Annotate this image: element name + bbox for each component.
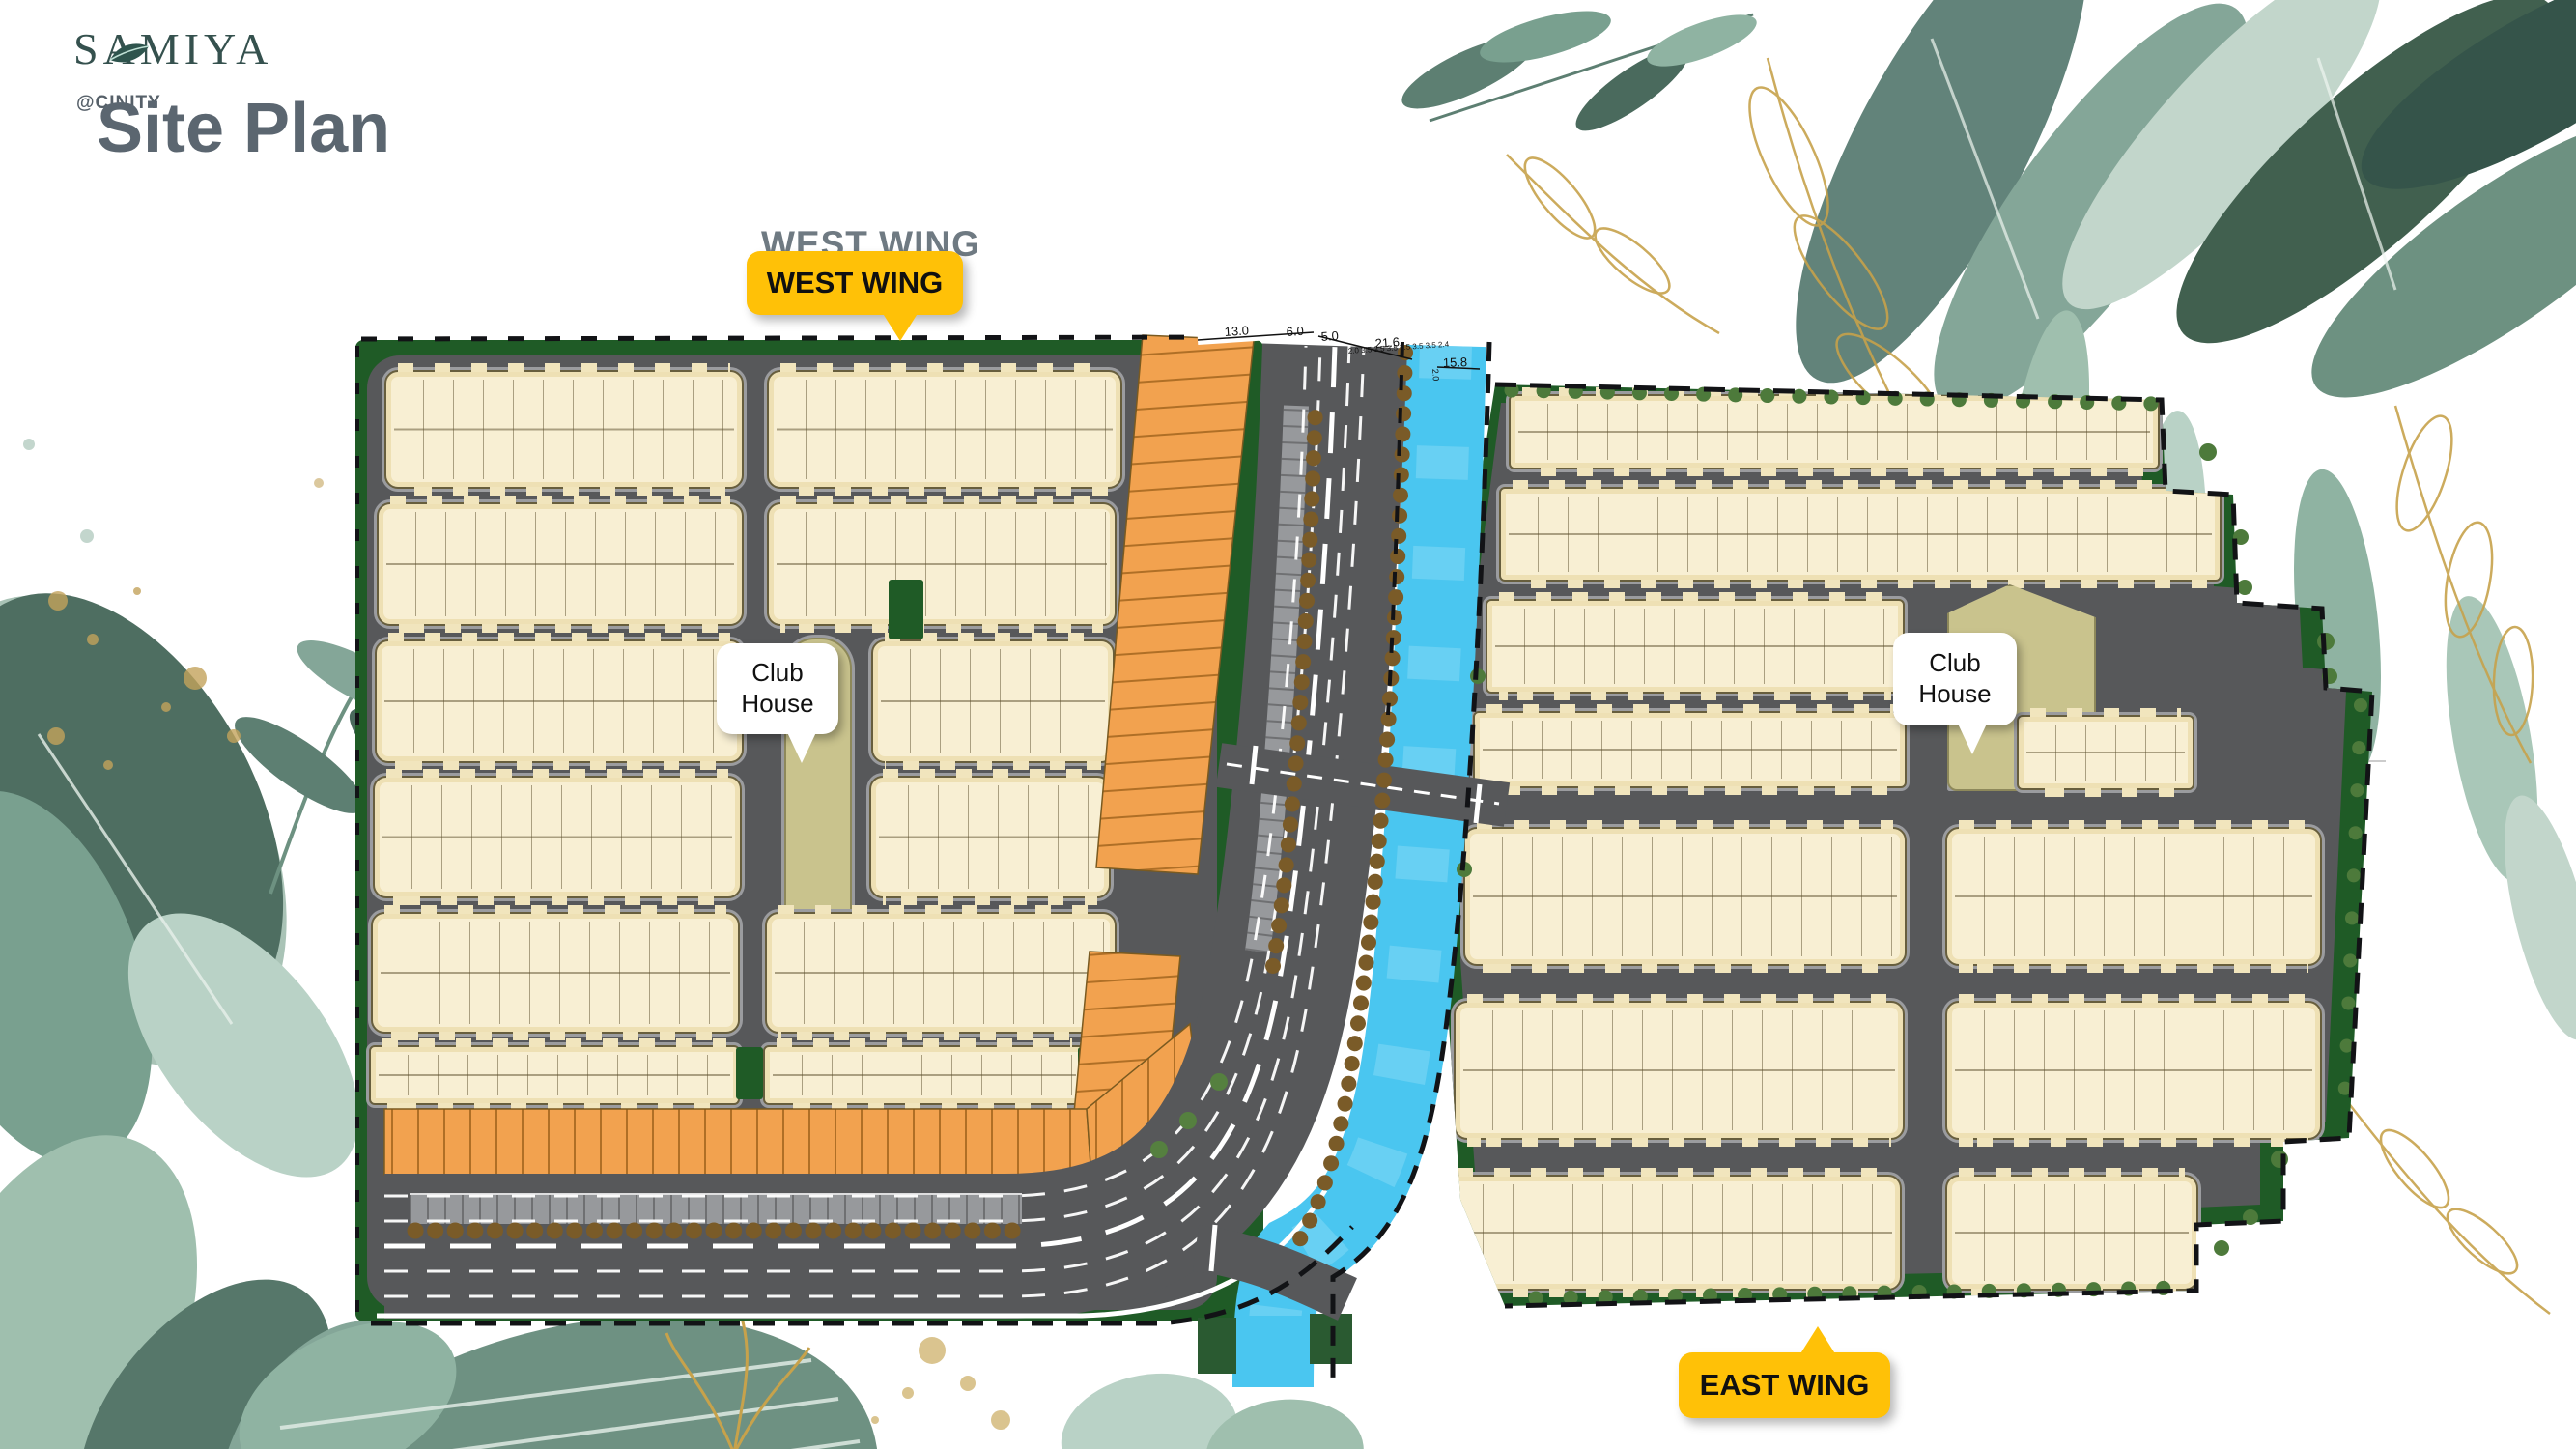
orange-plot-strips: [384, 335, 1254, 1180]
dim-text: 2.0: [1430, 368, 1441, 381]
tag-pointer-icon: [882, 312, 919, 341]
infrastructure-overlay: 13.0 6.0 5.0 2.0 3.5 3.5 3.5 3.5 3.5 3.5…: [0, 0, 2576, 1449]
dim-text: 6.0: [1286, 324, 1304, 339]
dim-text: 13.0: [1224, 323, 1249, 339]
bubble-pointer-icon: [786, 730, 817, 763]
green-patch: [1198, 1318, 1236, 1374]
brand-leaf-icon: [108, 39, 151, 68]
club-house-label-west: Club House: [717, 643, 838, 734]
tag-pointer-icon: [1799, 1326, 1836, 1355]
east-wing-tag-label: EAST WING: [1700, 1368, 1870, 1403]
west-wing-tag-label: WEST WING: [767, 266, 944, 300]
east-wing-tag: EAST WING: [1679, 1352, 1890, 1418]
club-house-label-text: Club House: [1916, 648, 1994, 709]
bubble-pointer-icon: [1957, 722, 1988, 754]
west-wing-tag: WEST WING: [747, 251, 963, 315]
club-house-label-text: Club House: [739, 658, 816, 719]
dim-text: 15.8: [1443, 355, 1468, 370]
dim-text: 5.0: [1320, 328, 1339, 344]
club-house-label-east: Club House: [1893, 633, 2017, 725]
slide: SAMIYA @CINITY Site Plan WEST WING: [0, 0, 2576, 1449]
dim-text: 21.6: [1374, 334, 1400, 351]
